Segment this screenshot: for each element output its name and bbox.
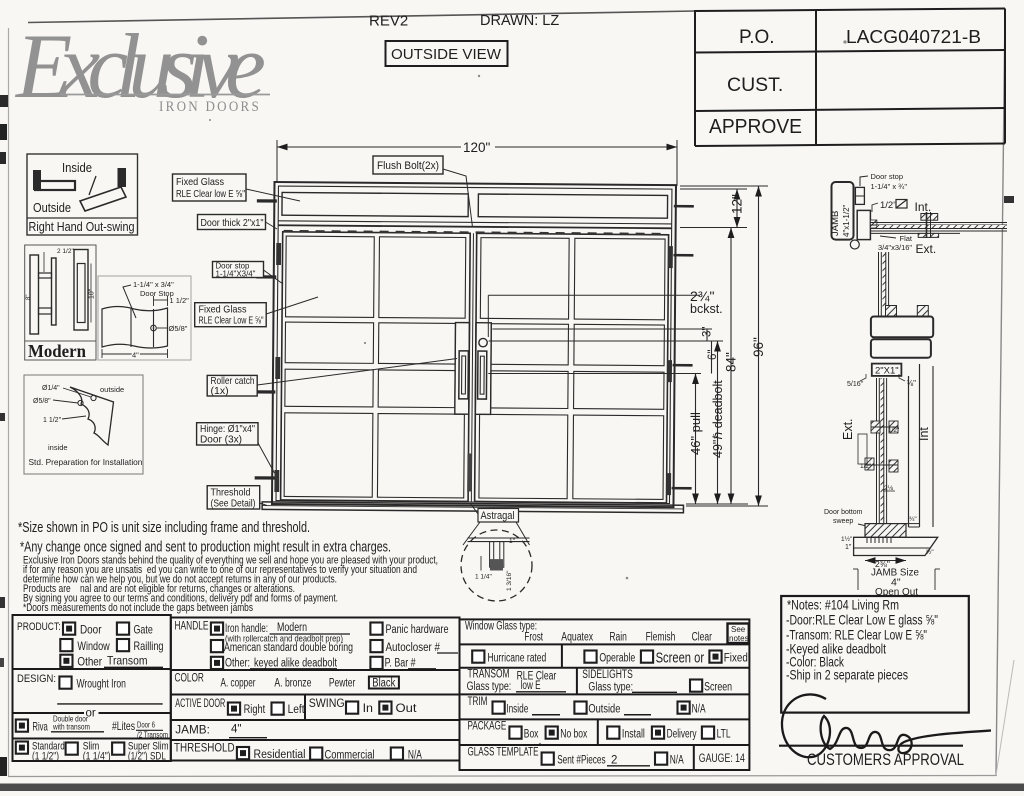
svg-text:outside: outside bbox=[100, 385, 124, 394]
svg-text:4": 4" bbox=[132, 351, 139, 360]
svg-text:Window: Window bbox=[77, 639, 110, 653]
svg-text:APPROVE: APPROVE bbox=[709, 116, 802, 138]
svg-text:low E: low E bbox=[521, 680, 541, 692]
svg-text:3": 3" bbox=[702, 327, 714, 337]
svg-text:No box: No box bbox=[560, 729, 587, 741]
svg-text:1": 1" bbox=[509, 538, 516, 545]
svg-text:-Ship in 2 separate pieces: -Ship in 2 separate pieces bbox=[786, 667, 908, 683]
svg-text:2 1/2": 2 1/2" bbox=[57, 248, 74, 255]
svg-text:1 3/16": 1 3/16" bbox=[506, 570, 513, 591]
svg-text:SIDELIGHTS: SIDELIGHTS bbox=[582, 669, 633, 681]
svg-text:LTL: LTL bbox=[717, 729, 731, 741]
svg-text:HANDLE: HANDLE bbox=[175, 621, 209, 633]
svg-text:N/A: N/A bbox=[670, 755, 684, 767]
svg-text:Ø5/8": Ø5/8" bbox=[33, 398, 51, 405]
svg-text:*Size shown in PO is unit size: *Size shown in PO is unit size including… bbox=[18, 520, 310, 536]
svg-text:10": 10" bbox=[89, 288, 96, 299]
svg-text:(1 1/4"): (1 1/4") bbox=[83, 750, 111, 762]
svg-text:6": 6" bbox=[707, 350, 719, 360]
svg-text:GLASS TEMPLATE: GLASS TEMPLATE bbox=[468, 747, 539, 759]
svg-text:TRANSOM: TRANSOM bbox=[468, 669, 510, 681]
svg-text:SWING: SWING bbox=[309, 698, 345, 710]
svg-text:1-1/4" x 3/4": 1-1/4" x 3/4" bbox=[133, 280, 174, 289]
svg-text:120": 120" bbox=[463, 140, 491, 155]
svg-text:Black: Black bbox=[372, 678, 395, 690]
svg-text:Panic hardware: Panic hardware bbox=[386, 624, 449, 636]
svg-text:Transom: Transom bbox=[107, 654, 148, 668]
svg-text:DESIGN:: DESIGN: bbox=[17, 673, 56, 685]
svg-text:In: In bbox=[363, 703, 373, 715]
svg-text:1 1/2": 1 1/2" bbox=[43, 417, 62, 424]
svg-text:2"X1": 2"X1" bbox=[875, 366, 899, 377]
svg-text:See: See bbox=[731, 625, 746, 634]
svg-text:REV2: REV2 bbox=[369, 13, 408, 30]
svg-text:P.O.: P.O. bbox=[739, 27, 775, 48]
svg-text:Clear: Clear bbox=[692, 632, 712, 644]
svg-text:PRODUCT:: PRODUCT: bbox=[17, 621, 61, 633]
svg-text:(See Detail): (See Detail) bbox=[211, 498, 256, 510]
svg-text:1 1/2": 1 1/2" bbox=[170, 296, 190, 305]
svg-text:GAUGE: 14: GAUGE: 14 bbox=[699, 753, 745, 765]
svg-text:5/16": 5/16" bbox=[847, 381, 864, 388]
svg-text:96": 96" bbox=[751, 337, 766, 357]
svg-text:1/2": 1/2" bbox=[888, 427, 900, 434]
svg-text:PACKAGE: PACKAGE bbox=[468, 721, 507, 733]
svg-text:N/A: N/A bbox=[408, 750, 422, 762]
svg-text:Hurricane rated: Hurricane rated bbox=[488, 653, 547, 665]
svg-text:46" pull: 46" pull bbox=[688, 412, 703, 455]
svg-text:Glass type:: Glass type: bbox=[467, 681, 512, 693]
svg-text:Riva: Riva bbox=[32, 720, 48, 734]
svg-text:12": 12" bbox=[730, 194, 745, 214]
svg-text:sweep: sweep bbox=[833, 518, 853, 525]
svg-text:Int: Int bbox=[917, 427, 931, 441]
svg-text:keyed alike deadbolt: keyed alike deadbolt bbox=[254, 658, 338, 670]
svg-text:Std. Preparation for Installat: Std. Preparation for Installation bbox=[29, 457, 143, 467]
svg-text:Fixed Glass: Fixed Glass bbox=[176, 176, 224, 188]
svg-text:Pewter: Pewter bbox=[329, 678, 356, 690]
svg-text:notes: notes bbox=[729, 634, 749, 643]
svg-text:Fixed: Fixed bbox=[724, 653, 748, 665]
svg-text:IRON DOORS: IRON DOORS bbox=[159, 99, 261, 115]
svg-text:Box: Box bbox=[524, 729, 539, 741]
svg-text:Flat: Flat bbox=[900, 234, 913, 243]
svg-text:½": ½" bbox=[926, 548, 934, 556]
svg-text:inside: inside bbox=[48, 443, 68, 452]
svg-text:Glass type:: Glass type: bbox=[588, 682, 633, 694]
svg-text:A. bronze: A. bronze bbox=[274, 678, 311, 690]
svg-text:JAMB:: JAMB: bbox=[175, 725, 210, 737]
svg-text:Modern: Modern bbox=[277, 622, 307, 634]
svg-text:CUST.: CUST. bbox=[727, 74, 783, 96]
svg-text:Screen or: Screen or bbox=[656, 650, 705, 667]
svg-text:Outside: Outside bbox=[588, 704, 620, 716]
svg-text:Aquatex: Aquatex bbox=[561, 632, 593, 644]
svg-text:1 1/4": 1 1/4" bbox=[475, 574, 492, 581]
svg-text:Screen: Screen bbox=[704, 682, 732, 694]
svg-text:Other:: Other: bbox=[225, 658, 250, 670]
svg-text:Ext.: Ext. bbox=[841, 418, 855, 440]
svg-text:P. Bar #: P. Bar # bbox=[385, 658, 416, 670]
svg-text:*Any change once signed and se: *Any change once signed and sent to prod… bbox=[20, 540, 391, 556]
svg-text:Flush Bolt(2x): Flush Bolt(2x) bbox=[377, 160, 439, 172]
svg-text:Residential: Residential bbox=[254, 749, 306, 761]
svg-text:Frost: Frost bbox=[524, 632, 543, 644]
svg-text:Delivery: Delivery bbox=[667, 729, 697, 741]
svg-text:Inside: Inside bbox=[62, 160, 92, 175]
svg-text:Other: Other bbox=[77, 655, 102, 669]
svg-text:Right Hand Out-swing: Right Hand Out-swing bbox=[29, 219, 135, 234]
svg-text:(1x): (1x) bbox=[211, 385, 229, 397]
svg-text:COLOR: COLOR bbox=[175, 673, 204, 685]
svg-text:1-1/4" x ¾": 1-1/4" x ¾" bbox=[871, 182, 908, 191]
svg-text:American standard double borin: American standard double boring bbox=[224, 642, 353, 654]
svg-text:49"ℏ deadbolt: 49"ℏ deadbolt bbox=[711, 380, 725, 458]
svg-text:(1/2") SDL: (1/2") SDL bbox=[128, 750, 166, 762]
svg-text:Door stop: Door stop bbox=[871, 172, 904, 181]
svg-text:8": 8" bbox=[26, 295, 32, 300]
svg-text:with transom: with transom bbox=[52, 723, 90, 732]
svg-text:RLE Clear low E ⅝": RLE Clear low E ⅝" bbox=[176, 188, 245, 200]
svg-text:1-1/4"X3/4": 1-1/4"X3/4" bbox=[216, 269, 256, 278]
svg-text:4": 4" bbox=[231, 724, 241, 736]
svg-text:OUTSIDE VIEW: OUTSIDE VIEW bbox=[391, 46, 502, 63]
svg-text:1": 1" bbox=[845, 544, 852, 551]
svg-text:Inside: Inside bbox=[506, 704, 528, 716]
svg-text:Ø1/4": Ø1/4" bbox=[42, 385, 60, 392]
svg-text:Flemish: Flemish bbox=[646, 632, 676, 644]
svg-text:1½": 1½" bbox=[841, 535, 853, 543]
svg-text:THRESHOLD: THRESHOLD bbox=[174, 743, 235, 755]
svg-text:-Door:RLE Clear Low E glass ⅝": -Door:RLE Clear Low E glass ⅝" bbox=[786, 612, 938, 628]
svg-text:Door 6: Door 6 bbox=[137, 721, 155, 730]
svg-text:CUSTOMERS APPROVAL: CUSTOMERS APPROVAL bbox=[807, 750, 964, 769]
svg-text:Sent #Pieces: Sent #Pieces bbox=[557, 755, 606, 767]
svg-text:Operable: Operable bbox=[599, 653, 635, 665]
svg-text:*Notes: #104 Living Rm: *Notes: #104 Living Rm bbox=[787, 597, 899, 613]
svg-text:¾": ¾" bbox=[909, 516, 917, 523]
svg-text:Door thick 2"x1": Door thick 2"x1" bbox=[201, 217, 264, 229]
svg-text:DRAWN: LZ: DRAWN: LZ bbox=[480, 13, 559, 29]
svg-text:Ø5/8": Ø5/8" bbox=[169, 324, 188, 333]
svg-text:84": 84" bbox=[724, 352, 739, 372]
svg-text:Int.: Int. bbox=[915, 200, 932, 214]
svg-text:Modern: Modern bbox=[28, 341, 86, 361]
svg-text:LACG040721-B: LACG040721-B bbox=[846, 26, 981, 47]
svg-text:TRIM: TRIM bbox=[468, 696, 488, 708]
svg-text:Wrought Iron: Wrought Iron bbox=[77, 677, 126, 691]
svg-text:/2 Transom: /2 Transom bbox=[137, 731, 168, 740]
svg-text:*Doors measurements do not inc: *Doors measurements do not include the g… bbox=[23, 602, 253, 614]
svg-text:Outside: Outside bbox=[33, 200, 71, 215]
svg-text:Install: Install bbox=[622, 729, 645, 741]
svg-text:#Lites: #Lites bbox=[112, 719, 135, 733]
svg-text:ACTIVE DOOR: ACTIVE DOOR bbox=[175, 698, 225, 710]
svg-text:(1 1/2"): (1 1/2") bbox=[32, 750, 59, 762]
svg-text:Gate: Gate bbox=[134, 623, 154, 637]
svg-text:N/A: N/A bbox=[692, 704, 706, 716]
svg-text:JAMB: JAMB bbox=[830, 211, 841, 236]
svg-text:1/2": 1/2" bbox=[880, 200, 897, 211]
svg-text:Out: Out bbox=[396, 703, 418, 715]
svg-text:bckst.: bckst. bbox=[690, 302, 723, 316]
svg-text:Rain: Rain bbox=[609, 632, 627, 644]
svg-text:Door (3x): Door (3x) bbox=[200, 434, 242, 446]
svg-text:Autocloser #: Autocloser # bbox=[386, 642, 441, 654]
svg-text:Railling: Railling bbox=[134, 639, 164, 653]
svg-text:Door: Door bbox=[80, 623, 102, 637]
svg-text:RLE Clear Low E ⅝": RLE Clear Low E ⅝" bbox=[199, 315, 264, 327]
svg-text:Commercial: Commercial bbox=[325, 750, 375, 762]
svg-text:2: 2 bbox=[611, 755, 617, 767]
svg-text:Door bottom: Door bottom bbox=[824, 509, 863, 516]
svg-text:Left: Left bbox=[288, 704, 306, 716]
svg-text:3/4"x3/16": 3/4"x3/16" bbox=[878, 243, 912, 252]
svg-text:4"x1-1/2": 4"x1-1/2" bbox=[842, 204, 851, 237]
svg-text:Ext.: Ext. bbox=[916, 242, 937, 256]
svg-text:Right: Right bbox=[244, 704, 266, 716]
svg-text:Astragal: Astragal bbox=[481, 510, 515, 522]
svg-text:A. copper: A. copper bbox=[221, 678, 256, 690]
